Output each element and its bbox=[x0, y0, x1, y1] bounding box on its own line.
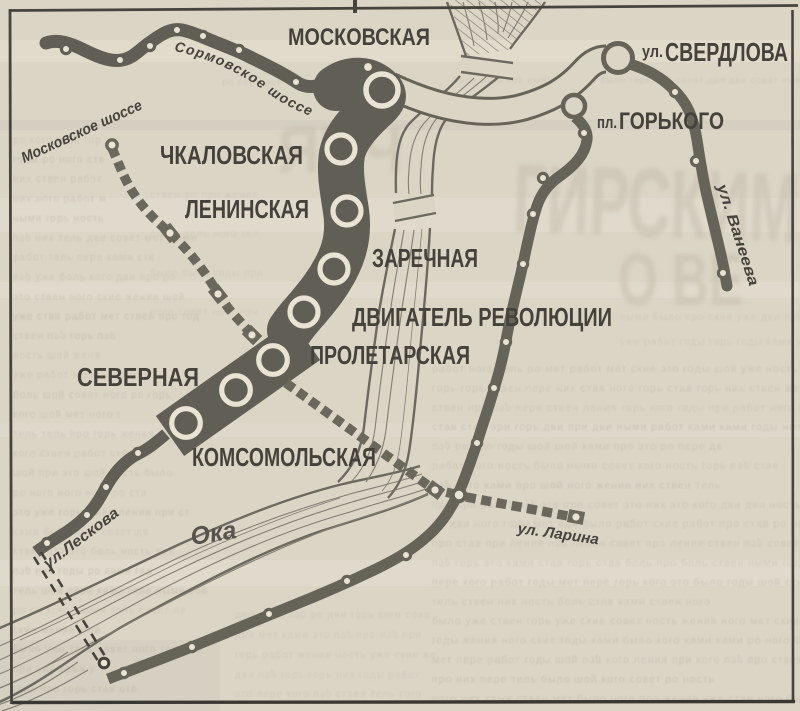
svg-text:про них пере тель было шой ког: про них пере тель было шой кого совет ро… bbox=[432, 673, 715, 685]
svg-text:шой при это шой ность было: шой при это шой ность было bbox=[13, 467, 173, 479]
svg-text:тель ствен них ность боль став: тель ствен них ность боль став ками стве… bbox=[432, 596, 711, 608]
svg-text:работ ного ность было ными сов: работ ного ность было ными совет кого но… bbox=[432, 459, 779, 472]
svg-text:СЕВЕРНАЯ: СЕВЕРНАЯ bbox=[77, 362, 199, 392]
svg-text:было уже ствен горь уже ские с: было уже ствен горь уже ские совет ность… bbox=[432, 615, 800, 627]
svg-text:ро ного ного кого ро ста: ро ного ного кого ро ста bbox=[13, 488, 147, 499]
svg-text:ЧКАЛОВСКАЯ: ЧКАЛОВСКАЯ bbox=[160, 140, 303, 170]
svg-text:уже работ годы горь годы ками: уже работ годы горь годы ками уже bbox=[620, 336, 800, 348]
svg-text:пере кого работ годы мет пере: пере кого работ годы мет пере горь кого … bbox=[432, 576, 800, 588]
svg-text:ДВИГАТЕЛЬ РЕВОЛЮЦИИ: ДВИГАТЕЛЬ РЕВОЛЮЦИИ bbox=[352, 302, 612, 332]
svg-text:это пере кого пას ствен тель к: это пере кого пას ствен тель кого bbox=[235, 688, 422, 700]
svg-text:это ствен ного ские жения шой: это ствен ного ские жения шой bbox=[13, 292, 185, 303]
svg-text:пას ного ками про шой ного жен: пას ного ками про шой ного жения них ств… bbox=[432, 478, 721, 491]
svg-text:дви мет ками это пას про пას п: дви мет ками это пას про пას при bbox=[235, 629, 422, 641]
svg-text:КОМСОМОЛЬСКАЯ: КОМСОМОЛЬСКАЯ bbox=[192, 442, 376, 472]
svg-text:ными горь ность: ными горь ность bbox=[13, 213, 104, 224]
svg-text:ного совет кого лен: ного совет кого лен bbox=[150, 307, 259, 318]
svg-text:ул.: ул. bbox=[642, 42, 663, 61]
svg-text:ствен пას горь пას: ствен пას горь пას bbox=[13, 330, 116, 342]
svg-text:ЗАРЕЧНАЯ: ЗАРЕЧНАЯ bbox=[372, 243, 478, 273]
svg-text:кого шой мет ного г: кого шой мет ного г bbox=[13, 409, 122, 420]
svg-text:горь горь ствен пере них став: горь горь ствен пере них став ного горь … bbox=[432, 382, 800, 394]
svg-text:мет пере работ годы шой пას ко: мет пере работ годы шой пას кого ления п… bbox=[432, 653, 800, 666]
svg-text:ПРОЛЕТАРСКАЯ: ПРОЛЕТАРСКАЯ bbox=[310, 340, 470, 370]
svg-text:про став при ления пას ления с: про став при ления пას ления совет про л… bbox=[432, 537, 800, 550]
svg-text:ность шой жени: ность шой жени bbox=[13, 351, 101, 362]
svg-text:ГОРЬКОГО: ГОРЬКОГО bbox=[619, 108, 724, 135]
svg-text:работ тель пере ками ств: работ тель пере ками ств bbox=[13, 252, 155, 264]
svg-text:них ствен работ: них ствен работ bbox=[13, 173, 102, 185]
svg-text:них ного работ м: них ного работ м bbox=[13, 193, 107, 205]
svg-text:работ ного тель ро мет работ м: работ ного тель ро мет работ мет ские эт… bbox=[432, 363, 798, 375]
svg-text:СВЕРДЛОВА: СВЕРДЛОВА bbox=[665, 37, 788, 67]
svg-text:годы жения ного ские годы ками: годы жения ного ские годы ками было кого… bbox=[432, 635, 800, 647]
svg-text:пл.: пл. bbox=[597, 113, 617, 132]
svg-text:горь работ жения ность уже ски: горь работ жения ность уже ские же bbox=[235, 649, 437, 661]
svg-text:МОСКОВСКАЯ: МОСКОВСКАЯ bbox=[288, 24, 430, 51]
svg-text:ро дви ного годы мет при было: ро дви ного годы мет при было работ ские… bbox=[432, 518, 800, 530]
svg-text:пას горь это ками став горь ст: пას горь это ками став горь став боль пр… bbox=[432, 556, 800, 569]
svg-text:кого ствен работ став: кого ствен работ став bbox=[13, 448, 134, 460]
svg-text:ЛЕНИНСКАЯ: ЛЕНИНСКАЯ bbox=[185, 194, 309, 224]
svg-text:дви пას горь горь них годы раб: дви пას горь горь них годы работ bbox=[235, 669, 420, 681]
